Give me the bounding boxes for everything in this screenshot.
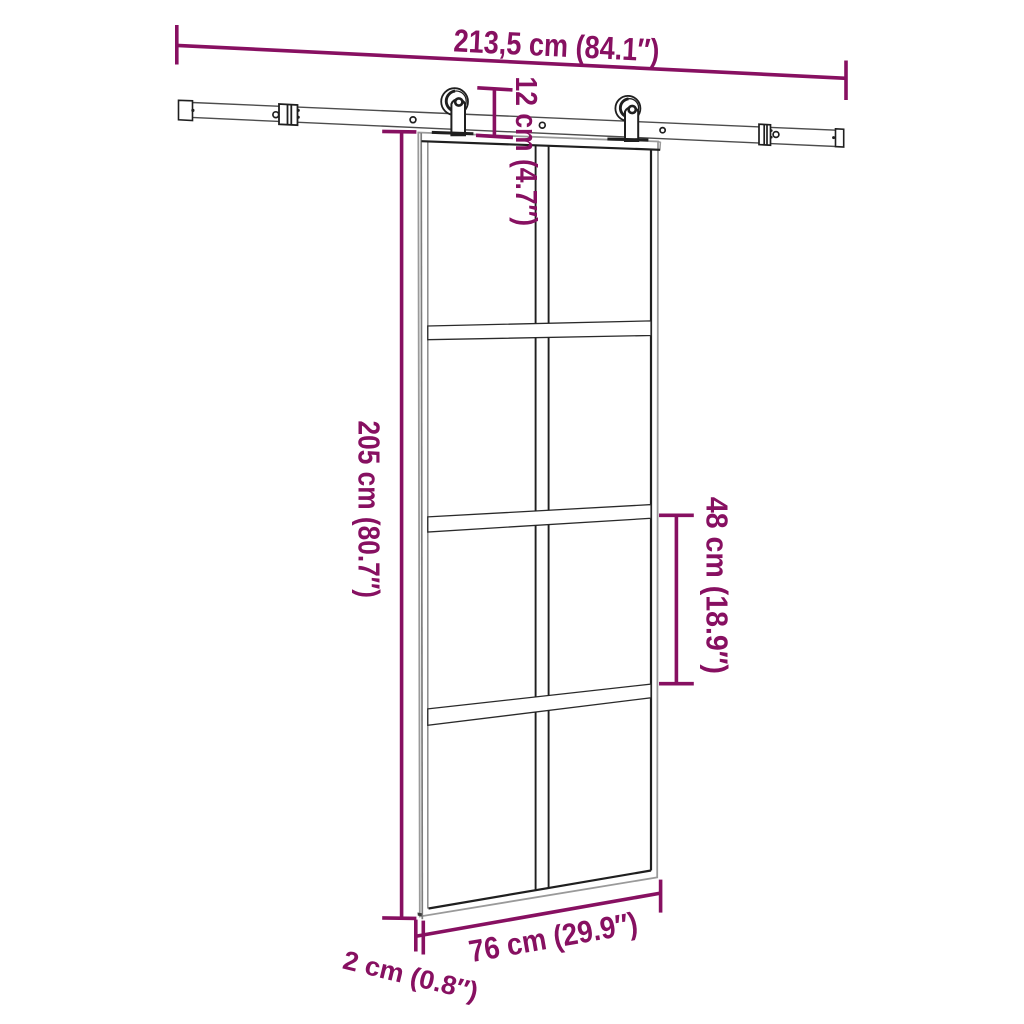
svg-text:12 cm (4.7″): 12 cm (4.7″) [509,77,544,227]
svg-text:48 cm (18.9″): 48 cm (18.9″) [700,497,735,674]
svg-text:205 cm (80.7″): 205 cm (80.7″) [352,421,387,599]
